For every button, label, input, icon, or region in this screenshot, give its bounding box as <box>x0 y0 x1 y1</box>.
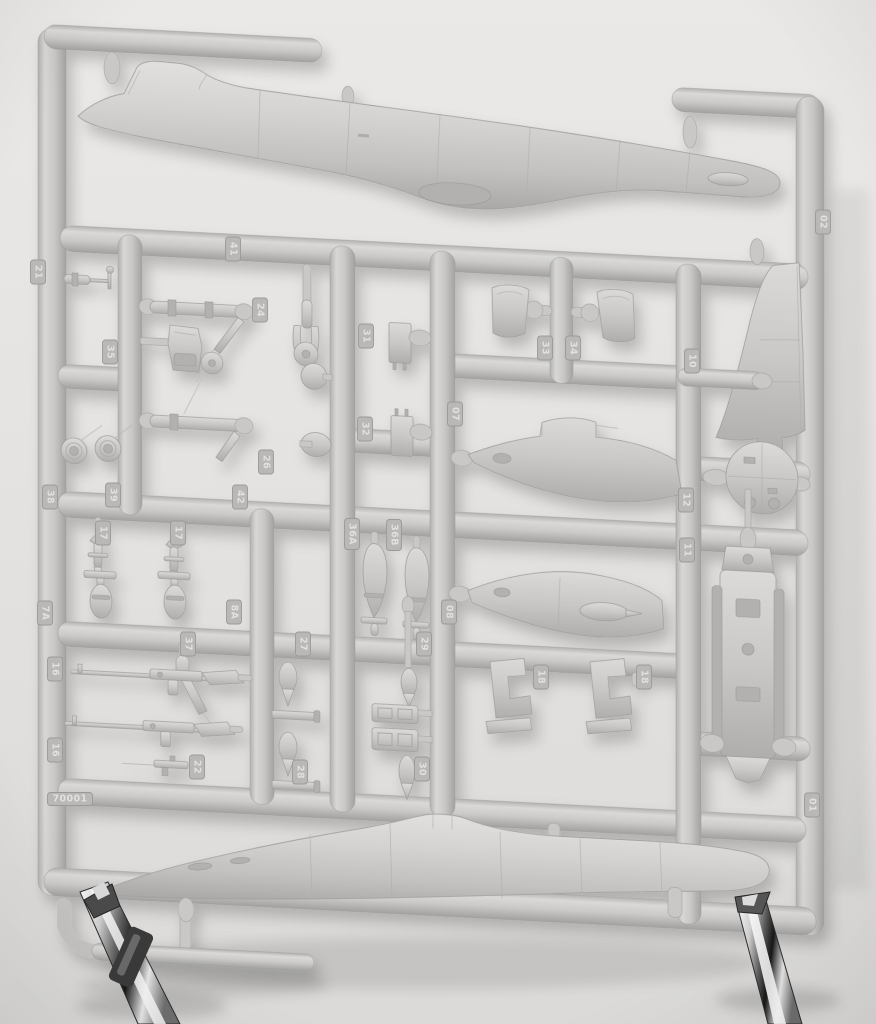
vignette-overlay <box>0 0 876 1024</box>
photo-model-kit-sprue: 213538394124264231320733341002121117177A… <box>0 0 876 1024</box>
